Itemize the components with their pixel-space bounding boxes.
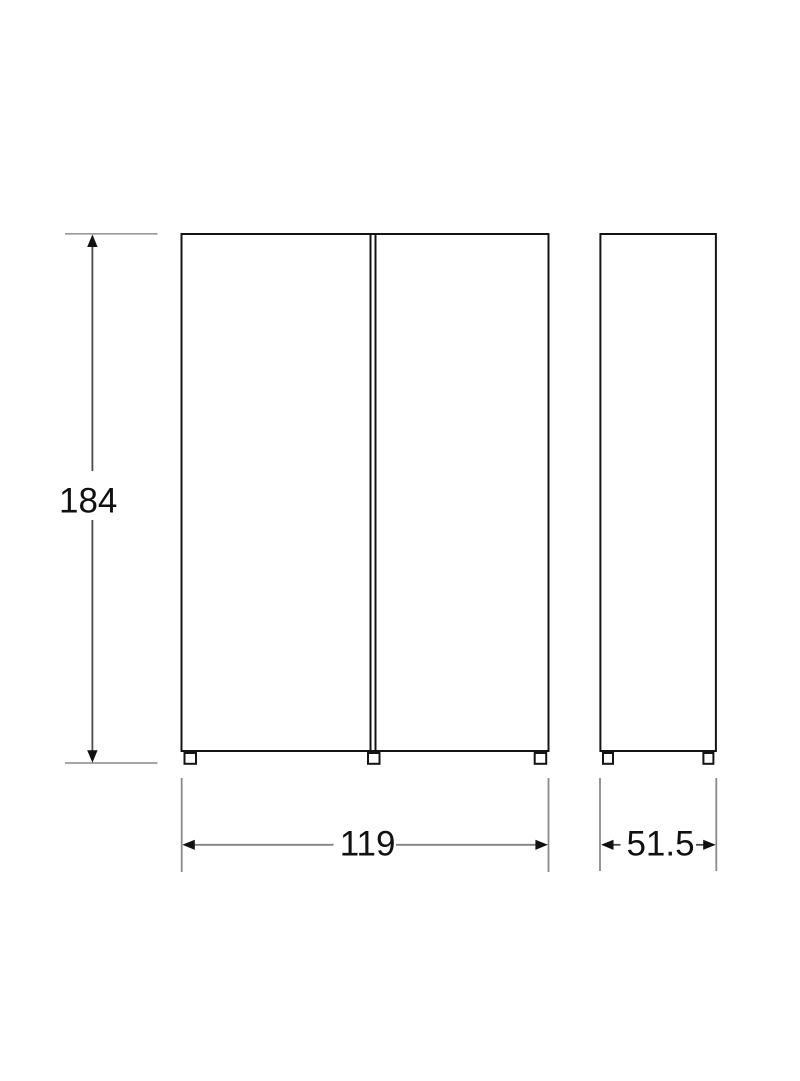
svg-text:51.5: 51.5 xyxy=(626,825,694,864)
svg-text:119: 119 xyxy=(340,825,396,864)
svg-text:184: 184 xyxy=(59,482,117,521)
